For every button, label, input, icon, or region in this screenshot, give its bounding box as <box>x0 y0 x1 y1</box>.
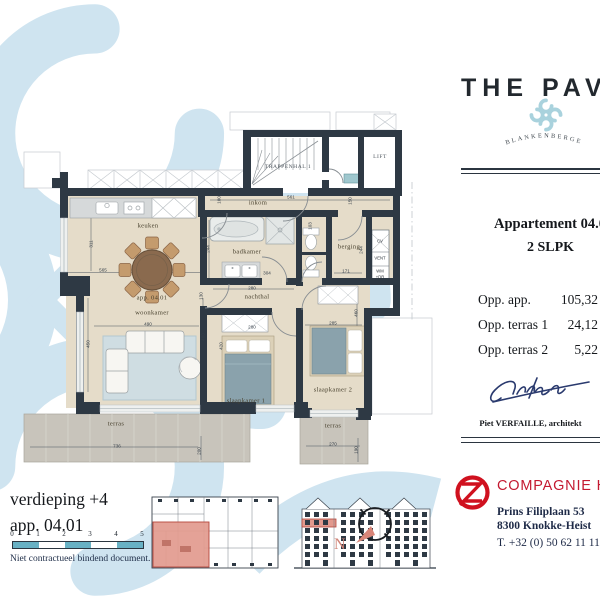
keyplan-thumbnail <box>152 497 278 568</box>
armchair <box>179 357 201 379</box>
disclaimer-note: Niet contractueel bindend document. <box>10 554 150 564</box>
brand-subtitle: BLANKENBERGE <box>505 132 584 146</box>
divider-bottom-2 <box>461 442 600 443</box>
company-address-line2: 8300 Knokke-Heist <box>497 520 591 532</box>
bathtub <box>210 217 264 241</box>
double-sink <box>222 262 260 280</box>
dining-table <box>119 237 185 303</box>
technical-units <box>372 230 389 282</box>
area-label: Opp. terras 1 <box>478 317 548 333</box>
area-value: 24,12 <box>568 317 598 333</box>
company-address-line1: Prins Filiplaan 53 <box>497 506 585 518</box>
area-value: 105,32 <box>561 292 598 308</box>
company-phone: T. +32 (0) 50 62 11 11. <box>497 537 600 549</box>
architect-name: Piet VERFAILLE, architekt <box>461 418 600 428</box>
kitchen-counter <box>70 198 196 218</box>
area-label: Opp. terras 2 <box>478 342 548 358</box>
shower <box>266 217 294 244</box>
area-label: Opp. app. <box>478 292 531 308</box>
closet-2 <box>318 286 358 304</box>
scale-bar-segments <box>12 541 144 549</box>
scale-tick: 2 <box>62 530 66 538</box>
terraces <box>24 414 368 464</box>
scale-tick: 0 <box>10 530 14 538</box>
closet-1 <box>222 314 268 332</box>
bed-1 <box>222 336 274 406</box>
apartment-type: 2 SLPK <box>527 240 574 256</box>
company-name: COMPAGNIE HET ZOUTE <box>497 478 600 494</box>
scale-tick: 4 <box>114 530 118 538</box>
brand-subtitle-arc: BLANKENBERGE <box>495 126 595 154</box>
scale-tick: 5 <box>140 530 144 538</box>
divider-top-thin <box>461 173 600 174</box>
divider-top-thick <box>461 168 600 170</box>
divider-bottom-1 <box>461 437 600 438</box>
scale-ticks: 0 1 2 3 4 5 <box>12 530 144 539</box>
company-logo-icon <box>452 472 493 513</box>
area-row-terras-1: Opp. terras 1 24,12 <box>478 317 598 333</box>
plan-sheet: { "brand": { "title": "THE PAVILION", "s… <box>0 0 600 600</box>
area-row-terras-2: Opp. terras 2 5,22 <box>478 342 598 358</box>
architect-signature <box>487 368 597 412</box>
bed-2 <box>310 326 368 376</box>
scale-tick: 3 <box>88 530 92 538</box>
scale-bar: 0 1 2 3 4 5 <box>12 530 144 549</box>
scale-tick: 1 <box>36 530 40 538</box>
floor-level: verdieping +4 <box>10 489 108 510</box>
compass-north-label: N <box>334 536 346 554</box>
area-row-app: Opp. app. 105,32 <box>478 292 598 308</box>
apartment-heading: Appartement 04.01 <box>494 216 600 233</box>
svg-text:BLANKENBERGE: BLANKENBERGE <box>505 132 584 146</box>
keyplan-highlight <box>153 522 209 567</box>
area-value: 5,22 <box>574 342 598 358</box>
